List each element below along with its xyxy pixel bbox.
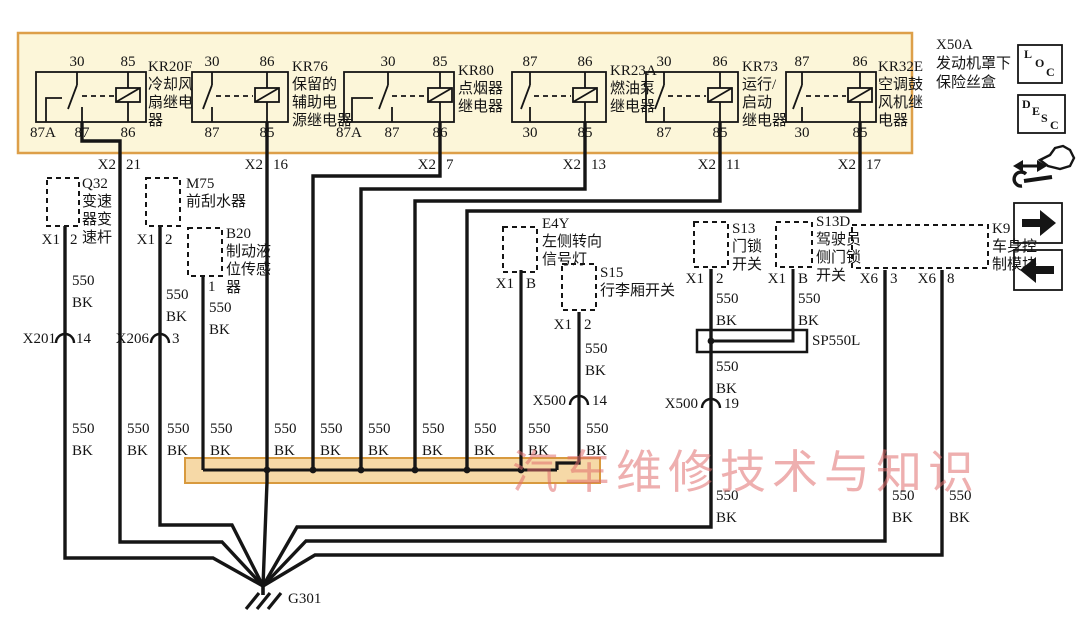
kr73-pin-86: 86 (708, 53, 732, 71)
desc-icon: E (1032, 104, 1040, 119)
wire-label: 550BK (127, 418, 150, 462)
q32-code: Q32 (82, 175, 108, 193)
kr23a-pin-30: 30 (518, 124, 542, 142)
m75-conn: X1 (131, 231, 155, 249)
kr32e-pin-86: 86 (848, 53, 872, 71)
relay-kr23a-code: KR23A (610, 62, 657, 80)
kr73-pin-85: 85 (708, 124, 732, 142)
relay-kr73-name-3: 继电器 (742, 112, 787, 130)
relay-kr23a-name-1: 燃油泵 (610, 80, 655, 98)
kr32e-pin-87: 87 (790, 53, 814, 71)
wire-label: 550BK (422, 418, 445, 462)
wire-label: 550BK (585, 338, 608, 382)
k9-name-2: 制模块 (992, 256, 1037, 274)
conn-x2-11-label: X2 (690, 156, 716, 174)
m75-pin: 2 (165, 231, 173, 249)
relay-kr32e-code: KR32E (878, 58, 923, 76)
component-e4y-outline (503, 227, 537, 272)
k9-pin-1: 3 (890, 270, 898, 288)
loc-icon: C (1046, 65, 1055, 80)
s13-name-2: 开关 (732, 256, 762, 274)
wire-label: 550BK (166, 284, 189, 328)
desc-icon: C (1050, 118, 1059, 133)
kr20f-pin-30: 30 (65, 53, 89, 71)
component-s15-outline (562, 264, 596, 310)
b20-name-1: 制动液 (226, 243, 271, 261)
wire-label: 550BK (474, 418, 497, 462)
component-k9-outline (852, 225, 988, 268)
component-q32-outline (47, 178, 79, 226)
connector-x500-14-code: X500 (526, 392, 566, 410)
s13d-name-3: 开关 (816, 267, 846, 285)
kr23a-pin-86: 86 (573, 53, 597, 71)
watermark: 汽车维修技术与知识 (512, 436, 980, 502)
component-s13d-outline (776, 222, 812, 267)
kr80-pin-87: 87 (380, 124, 404, 142)
desc-icon: D (1022, 97, 1031, 112)
m75-code: M75 (186, 175, 214, 193)
s13d-conn: X1 (762, 270, 786, 288)
relay-kr20f-name-2: 扇继电 (148, 94, 193, 112)
wire-label: 550BK (716, 288, 739, 332)
b20-name-2: 位传感 (226, 261, 271, 279)
k9-pin-2: 8 (947, 270, 955, 288)
kr20f-pin-86: 86 (116, 124, 140, 142)
wire-label: 550BK (209, 297, 232, 341)
s13-conn: X1 (680, 270, 704, 288)
k9-code: K9 (992, 220, 1010, 238)
e4y-pin: B (526, 275, 536, 293)
wire-kr76-ground (263, 122, 267, 586)
component-b20-outline (188, 228, 222, 276)
relay-kr73-name-2: 启动 (742, 94, 772, 112)
kr76-pin-86: 86 (255, 53, 279, 71)
q32-name-3: 速杆 (82, 229, 112, 247)
q32-name-2: 器变 (82, 211, 112, 229)
ground-symbol (246, 593, 281, 609)
conn-x2-21-label: X2 (90, 156, 116, 174)
connector-x206-pin: 3 (172, 330, 180, 348)
relay-kr80-name-2: 继电器 (458, 98, 503, 116)
relay-kr23a-name-2: 继电器 (610, 98, 655, 116)
conn-x2-13-pin: 13 (591, 156, 606, 174)
conn-x2-7-pin: 7 (446, 156, 454, 174)
wire-label: 550BK (320, 418, 343, 462)
s15-code: S15 (600, 264, 623, 282)
wire-label: 550BK (368, 418, 391, 462)
relay-kr80-name-1: 点烟器 (458, 80, 503, 98)
relay-kr32e-name-3: 电器 (878, 112, 908, 130)
ground-g301-label: G301 (288, 590, 321, 608)
k9-conn-2: X6 (910, 270, 936, 288)
relay-kr32e-name-2: 风机继 (878, 94, 923, 112)
loc-icon: O (1035, 56, 1044, 71)
car-arrow-left-head (1013, 160, 1023, 172)
fusebox-name-1: 发动机罩下 (936, 55, 1011, 73)
wire-label: 550BK (72, 270, 95, 314)
m75-name-1: 前刮水器 (186, 193, 246, 211)
wire-label: 550BK (716, 356, 739, 400)
wiring-diagram: X50A 发动机罩下 保险丝盒 30 85 30 86 30 85 87 86 … (0, 0, 1080, 628)
relay-kr73-code: KR73 (742, 58, 778, 76)
connector-x201-code: X201 (18, 330, 56, 348)
s13-pin: 2 (716, 270, 724, 288)
s13d-name-2: 侧门锁 (816, 249, 861, 267)
kr76-pin-87: 87 (200, 124, 224, 142)
k9-name-1: 车身控 (992, 238, 1037, 256)
relay-kr32e-name-1: 空调鼓 (878, 76, 923, 94)
conn-x2-7-label: X2 (410, 156, 436, 174)
connector-x206-code: X206 (111, 330, 149, 348)
relay-kr76-name-1: 保留的 (292, 76, 337, 94)
kr23a-pin-87: 87 (518, 53, 542, 71)
loc-icon: L (1024, 47, 1032, 62)
s13d-code: S13D (816, 213, 850, 231)
connector-x500-14-pin: 14 (592, 392, 607, 410)
fusebox-name-2: 保险丝盒 (936, 74, 996, 92)
s13-code: S13 (732, 220, 755, 238)
kr23a-pin-85: 85 (573, 124, 597, 142)
connector-x201-pin: 14 (76, 330, 91, 348)
kr80-pin-30: 30 (376, 53, 400, 71)
q32-conn: X1 (36, 231, 60, 249)
q32-pin: 2 (70, 231, 78, 249)
kr20f-pin-87: 87 (70, 124, 94, 142)
relay-kr76-code: KR76 (292, 58, 328, 76)
s15-name-1: 行李厢开关 (600, 282, 675, 300)
relay-kr20f-name-1: 冷却风 (148, 76, 193, 94)
desc-icon: S (1041, 111, 1048, 126)
s15-conn: X1 (548, 316, 572, 334)
b20-code: B20 (226, 225, 251, 243)
wire-kr23a-ground (361, 122, 585, 470)
kr76-pin-30: 30 (200, 53, 224, 71)
relay-kr20f-code: KR20F (148, 58, 192, 76)
q32-name-1: 变速 (82, 193, 112, 211)
kr80-pin-86: 86 (428, 124, 452, 142)
next-arrow-glyph (1022, 210, 1056, 236)
b20-name-3: 器 (226, 279, 241, 297)
fusebox-code: X50A (936, 36, 973, 54)
kr32e-pin-85: 85 (848, 124, 872, 142)
wire-label: 550BK (167, 418, 190, 462)
s15-pin: 2 (584, 316, 592, 334)
kr76-pin-85: 85 (255, 124, 279, 142)
conn-x2-11-pin: 11 (726, 156, 740, 174)
s13-name-1: 门锁 (732, 238, 762, 256)
kr20f-pin-85: 85 (116, 53, 140, 71)
relay-kr20f-name-3: 器 (148, 112, 163, 130)
connector-x500-19-code: X500 (658, 395, 698, 413)
e4y-code: E4Y (542, 215, 570, 233)
conn-x2-13-label: X2 (555, 156, 581, 174)
wire-label: 550BK (274, 418, 297, 462)
conn-x2-17-label: X2 (830, 156, 856, 174)
relay-kr80-code: KR80 (458, 62, 494, 80)
relay-kr76-name-3: 源继电器 (292, 112, 352, 130)
conn-x2-17-pin: 17 (866, 156, 881, 174)
wire-label: 550BK (210, 418, 233, 462)
splice-sp550l-label: SP550L (812, 332, 860, 350)
kr32e-pin-30: 30 (790, 124, 814, 142)
component-m75-outline (146, 178, 180, 226)
s13d-name-1: 驾驶员 (816, 231, 861, 249)
conn-x2-16-pin: 16 (273, 156, 288, 174)
wire-kr20f-ground (82, 122, 263, 586)
kr20f-pin-87a: 87A (30, 124, 56, 142)
b20-pin: 1 (208, 278, 216, 296)
s13d-pin: B (798, 270, 808, 288)
kr73-pin-87: 87 (652, 124, 676, 142)
wire-label: 550BK (798, 288, 821, 332)
kr80-pin-85: 85 (428, 53, 452, 71)
e4y-name-2: 信号灯 (542, 251, 587, 269)
relay-kr76-name-2: 辅助电 (292, 94, 337, 112)
k9-conn-1: X6 (852, 270, 878, 288)
conn-x2-21-pin: 21 (126, 156, 141, 174)
wire-label: 550BK (72, 418, 95, 462)
e4y-conn: X1 (490, 275, 514, 293)
component-s13-outline (694, 222, 728, 267)
e4y-name-1: 左侧转向 (542, 233, 602, 251)
conn-x2-16-label: X2 (237, 156, 263, 174)
relay-kr73-name-1: 运行/ (742, 76, 776, 94)
